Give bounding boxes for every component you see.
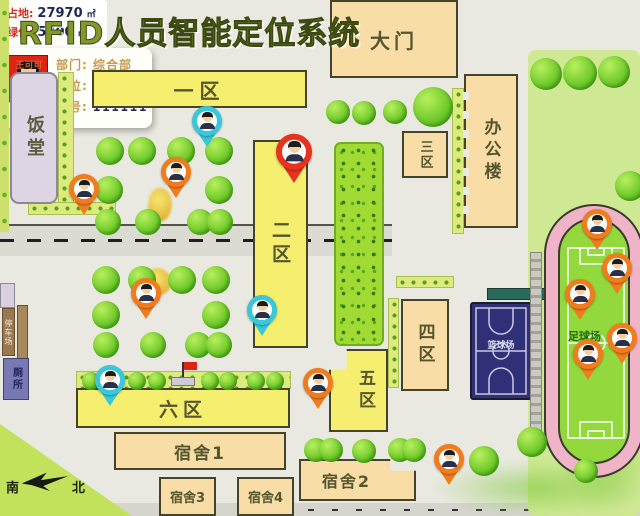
cyan-person-pin[interactable]: [95, 365, 125, 411]
person-icon: [192, 106, 222, 136]
orange-person-pin[interactable]: [602, 253, 632, 299]
cyan-person-pin[interactable]: [192, 106, 222, 152]
person-icon: [573, 339, 603, 369]
person-icon: [131, 278, 161, 308]
orange-person-pin[interactable]: [573, 339, 603, 385]
orange-person-pin[interactable]: [582, 209, 612, 255]
orange-person-pin[interactable]: [303, 368, 333, 414]
person-icon: [69, 174, 99, 204]
person-icon: [247, 295, 277, 325]
red-person-pin[interactable]: [276, 134, 312, 189]
person-icon: [434, 444, 464, 474]
orange-person-pin[interactable]: [161, 157, 191, 203]
person-icon: [602, 253, 632, 283]
person-icon: [95, 365, 125, 395]
person-icon: [565, 279, 595, 309]
campus-map: 大门 一区 饭堂 办公楼 三区 二区 四区 五区 六区 宿舍1 宿舍2 宿舍3 …: [0, 0, 640, 516]
person-icon: [607, 323, 637, 353]
person-icon: [303, 368, 333, 398]
pin-layer: [0, 0, 640, 516]
orange-person-pin[interactable]: [69, 174, 99, 220]
cyan-person-pin[interactable]: [247, 295, 277, 341]
orange-person-pin[interactable]: [607, 323, 637, 369]
orange-person-pin[interactable]: [434, 444, 464, 490]
orange-person-pin[interactable]: [131, 278, 161, 324]
page-title: RFID人员智能定位系统: [18, 8, 360, 53]
person-icon: [276, 134, 312, 170]
person-icon: [161, 157, 191, 187]
orange-person-pin[interactable]: [565, 279, 595, 325]
person-icon: [582, 209, 612, 239]
